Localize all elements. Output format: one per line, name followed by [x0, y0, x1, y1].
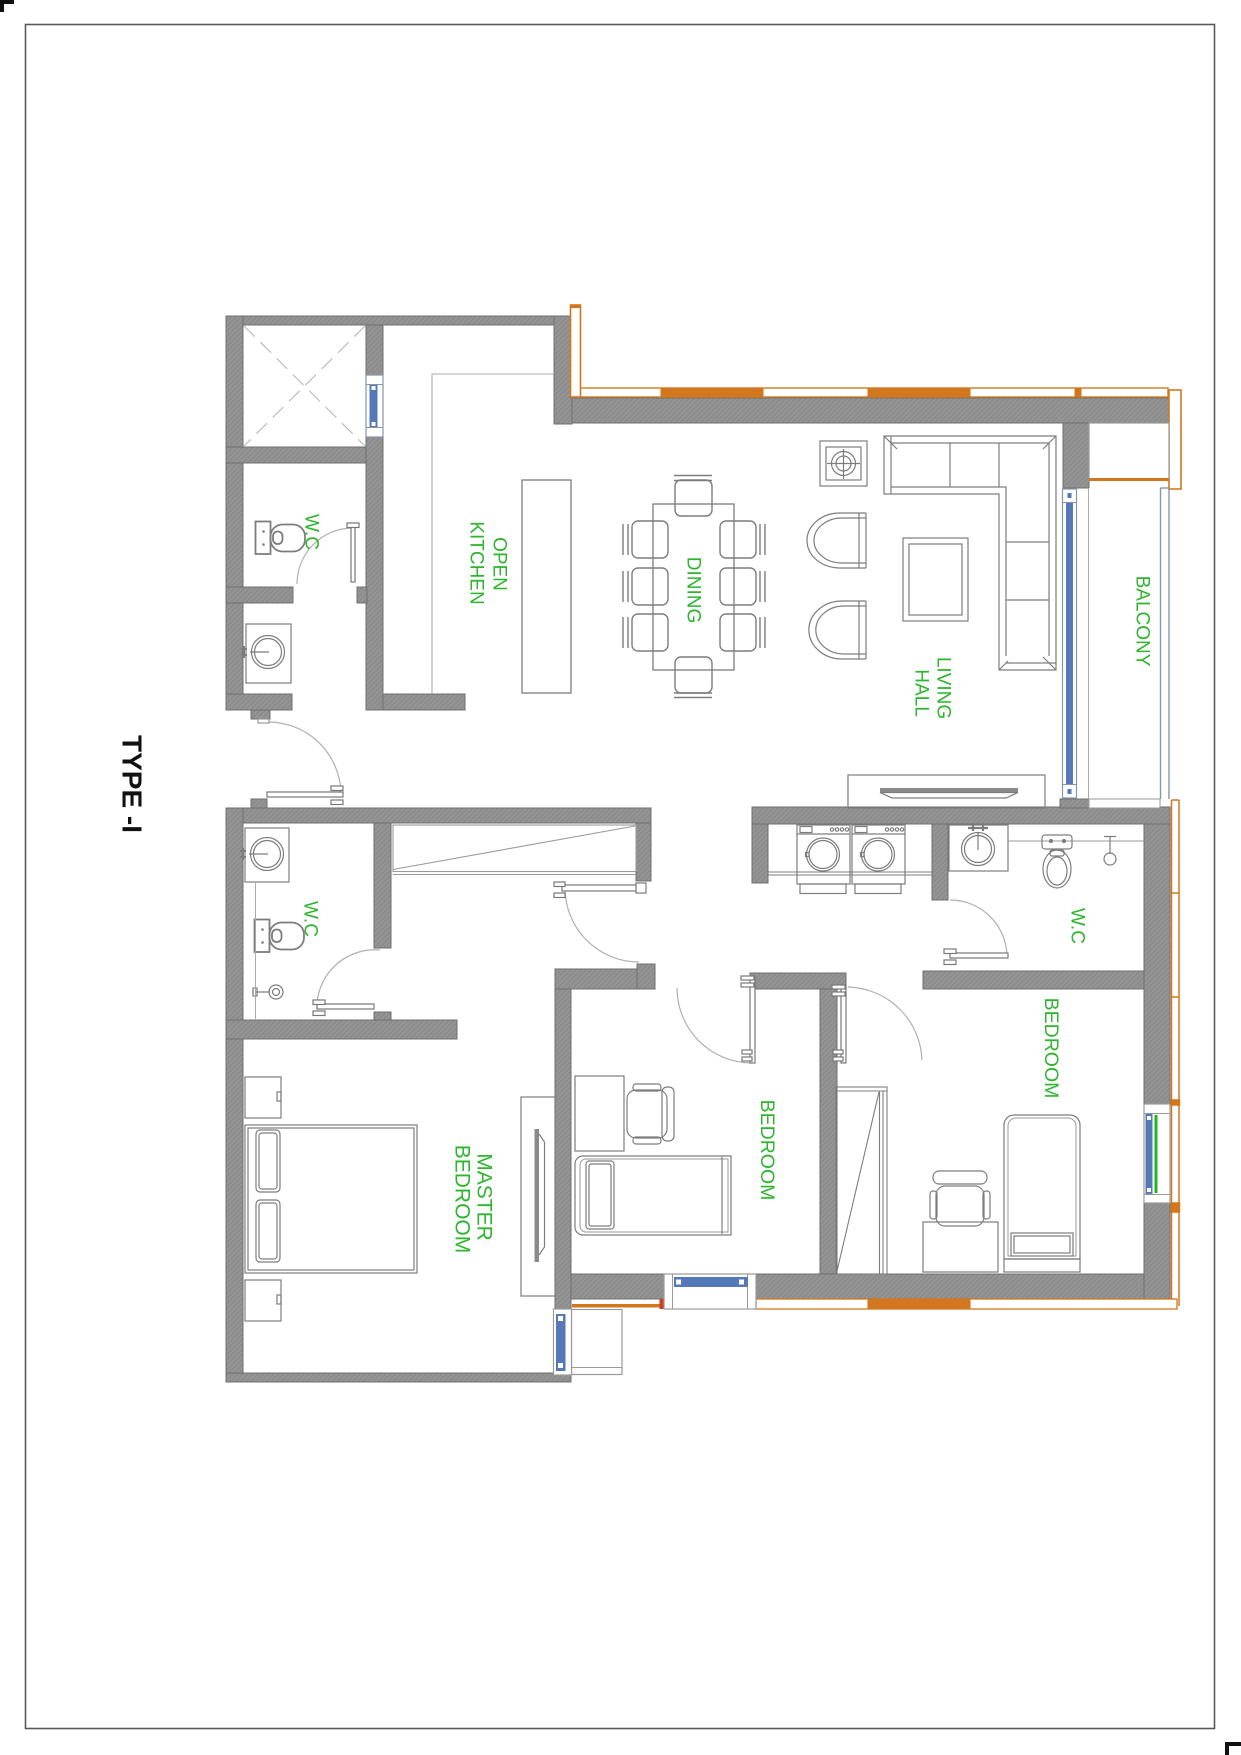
svg-text:HALL: HALL — [911, 669, 932, 717]
svg-text:MASTER: MASTER — [473, 1153, 496, 1241]
svg-text:BALCONY: BALCONY — [1132, 576, 1153, 667]
svg-text:W.C: W.C — [300, 901, 321, 937]
svg-text:W.C: W.C — [1067, 908, 1088, 944]
svg-text:KITCHEN: KITCHEN — [466, 521, 487, 604]
svg-text:TYPE -I: TYPE -I — [117, 735, 148, 833]
svg-text:LIVING: LIVING — [933, 657, 954, 719]
svg-text:BEDROOM: BEDROOM — [1040, 998, 1062, 1099]
svg-text:W.C: W.C — [301, 514, 322, 550]
svg-text:BEDROOM: BEDROOM — [451, 1145, 474, 1254]
svg-text:OPEN: OPEN — [489, 537, 510, 591]
svg-text:BEDROOM: BEDROOM — [756, 1100, 778, 1201]
svg-text:DINING: DINING — [683, 557, 704, 624]
